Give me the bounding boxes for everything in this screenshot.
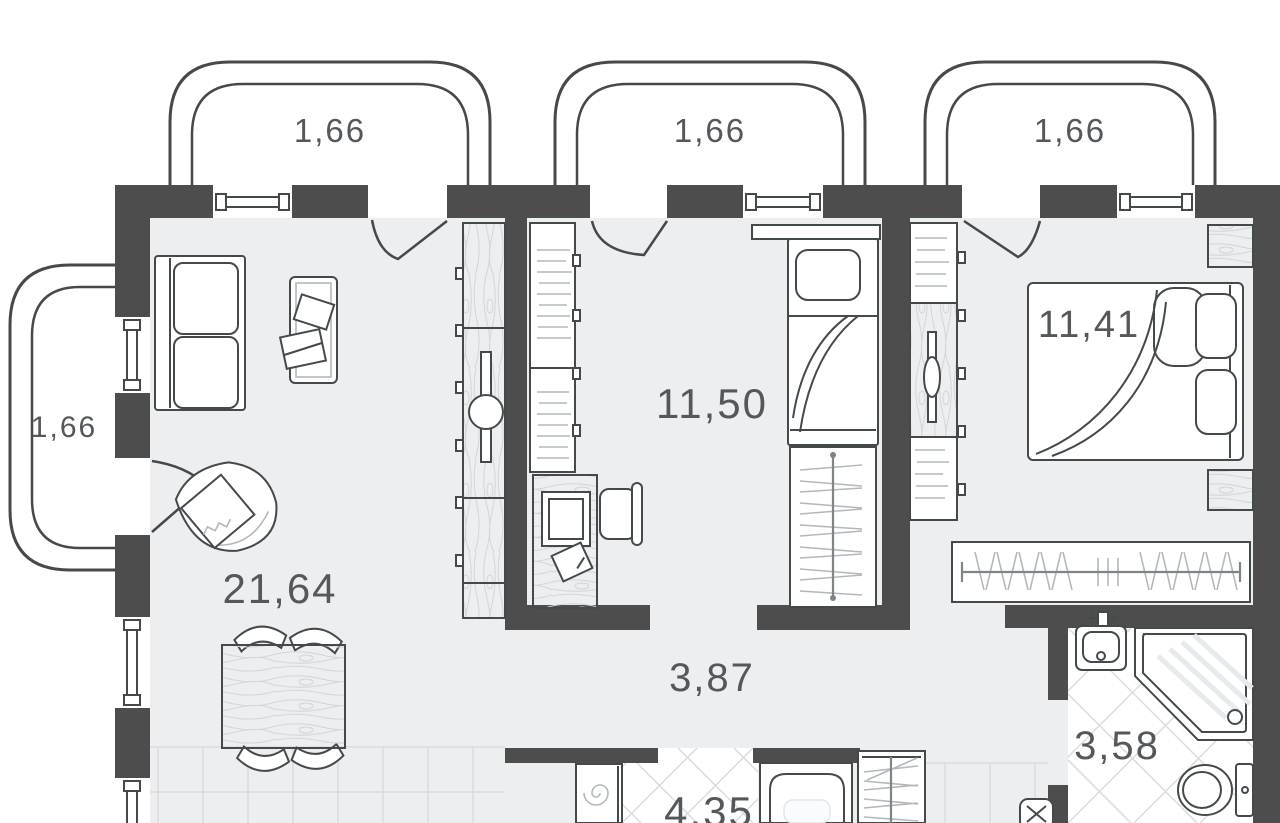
sofa	[155, 256, 245, 410]
bedroom-middle-area-label: 11,50	[656, 380, 768, 427]
shelf-dresser-column	[910, 223, 965, 520]
bathtub	[760, 763, 852, 823]
vent-shaft	[1020, 799, 1053, 823]
nightstand-top	[1208, 225, 1253, 267]
window-living-top	[213, 185, 292, 218]
wardrobe-middle	[790, 447, 876, 607]
floor-plan: 1,66 1,66 1,66 1,66	[0, 0, 1280, 823]
bookshelf	[530, 223, 580, 472]
wardrobe-right	[952, 542, 1250, 602]
window-bedroom-middle-top	[743, 185, 823, 218]
washing-machine	[576, 764, 622, 823]
nightstand-bottom	[1208, 470, 1253, 510]
tv-cabinet	[456, 223, 505, 618]
hall-wardrobe	[858, 751, 925, 823]
desk	[533, 475, 597, 608]
window-left-middle	[115, 617, 150, 708]
bedroom-right-area-label: 11,41	[1038, 304, 1140, 346]
living-kitchen-area-label: 21,64	[222, 565, 337, 612]
toilet	[1178, 764, 1253, 816]
utility-area-label: 4,35	[664, 788, 754, 823]
desk-chair	[600, 483, 642, 545]
balcony-top-middle-area: 1,66	[674, 112, 746, 149]
balcony-top-left-area: 1,66	[294, 112, 366, 149]
window-left-upper	[115, 317, 150, 393]
balcony-top-right-area: 1,66	[1034, 112, 1106, 149]
balcony-left-area: 1,66	[31, 411, 97, 444]
window-left-lower	[115, 778, 150, 823]
bathroom-area-label: 3,58	[1074, 724, 1160, 768]
floor-plan-page: 1,66 1,66 1,66 1,66	[0, 0, 1280, 823]
hallway-area-label: 3,87	[669, 656, 755, 700]
window-bedroom-right-top	[1117, 185, 1195, 218]
